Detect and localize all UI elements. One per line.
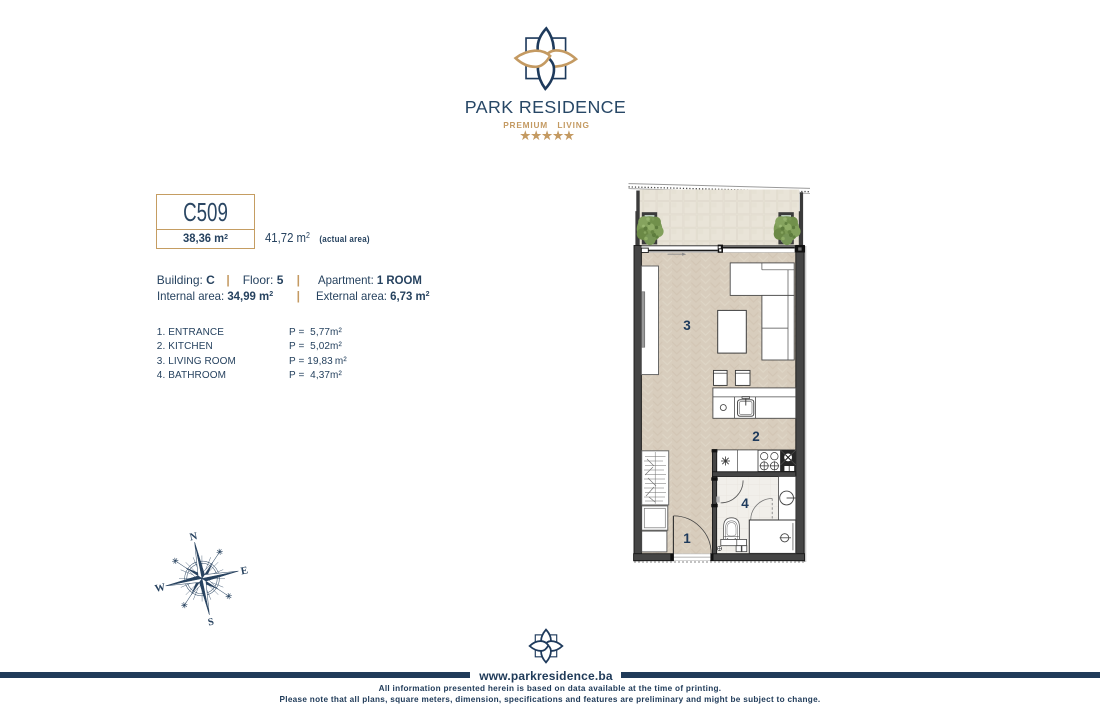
svg-text:S: S <box>207 617 215 629</box>
svg-text:E: E <box>240 565 249 577</box>
svg-text:W: W <box>154 582 167 595</box>
svg-text:N: N <box>189 531 199 543</box>
svg-text:2: 2 <box>752 429 760 444</box>
svg-text:4: 4 <box>741 496 749 511</box>
svg-text:1: 1 <box>683 531 691 546</box>
svg-text:3: 3 <box>683 318 691 333</box>
